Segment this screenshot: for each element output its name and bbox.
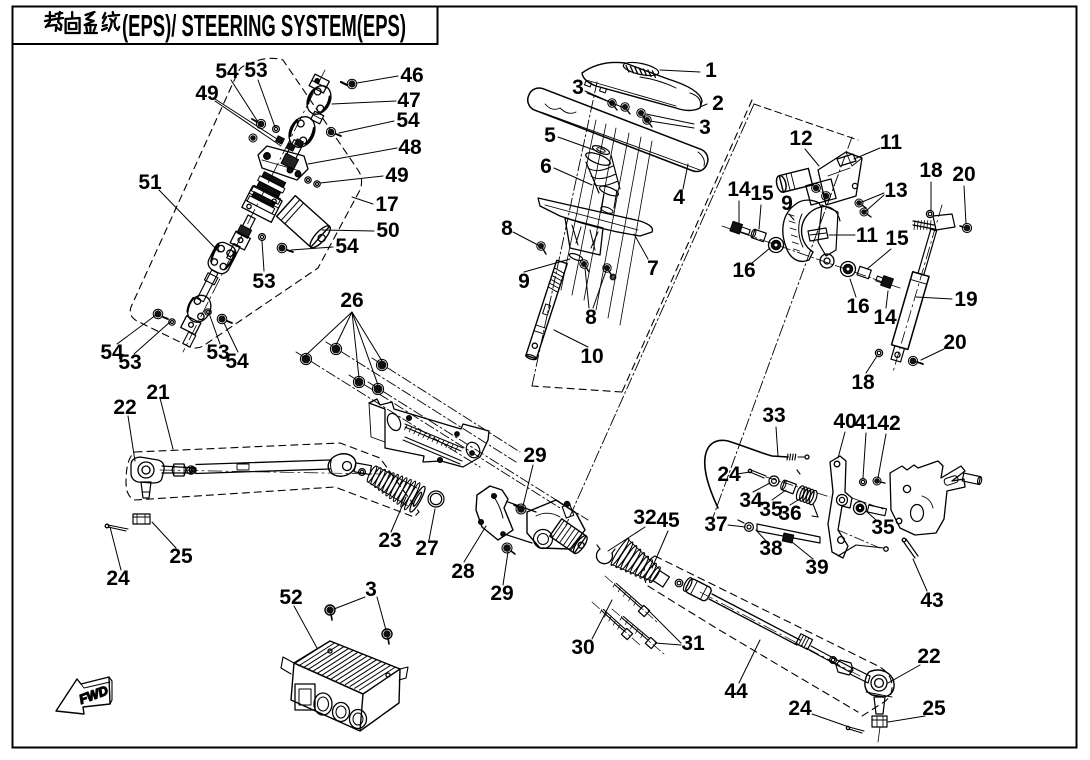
svg-text:9: 9 [781,192,793,215]
svg-text:18: 18 [851,371,875,394]
svg-text:46: 46 [400,64,423,87]
svg-text:14: 14 [727,178,751,201]
svg-text:36: 36 [778,502,801,525]
svg-text:25: 25 [922,697,946,720]
svg-text:54: 54 [396,109,420,132]
svg-text:3: 3 [699,116,711,139]
svg-text:52: 52 [279,586,302,609]
svg-text:42: 42 [877,412,900,435]
svg-text:24: 24 [717,463,741,486]
svg-text:31: 31 [681,632,705,655]
svg-text:53: 53 [244,59,267,82]
svg-text:3: 3 [365,578,377,601]
svg-text:51: 51 [138,171,162,194]
svg-text:39: 39 [805,556,828,579]
svg-text:50: 50 [376,219,399,242]
svg-text:15: 15 [750,182,774,205]
svg-text:54: 54 [335,235,359,258]
svg-text:12: 12 [789,127,812,150]
svg-text:48: 48 [398,136,422,159]
svg-text:33: 33 [762,404,785,427]
svg-text:30: 30 [571,636,594,659]
svg-text:29: 29 [490,582,513,605]
svg-text:8: 8 [501,217,513,240]
svg-text:19: 19 [954,288,977,311]
svg-text:5: 5 [544,124,556,147]
svg-text:43: 43 [920,589,943,612]
svg-text:6: 6 [540,155,552,178]
svg-text:2: 2 [712,92,724,115]
svg-text:20: 20 [943,331,966,354]
svg-text:10: 10 [580,345,603,368]
svg-text:22: 22 [917,645,940,668]
svg-text:40: 40 [833,410,856,433]
svg-text:29: 29 [523,444,546,467]
svg-text:13: 13 [884,179,907,202]
svg-text:4: 4 [673,186,685,209]
svg-text:15: 15 [885,227,909,250]
svg-text:38: 38 [759,537,783,560]
svg-text:53: 53 [252,270,275,293]
svg-text:16: 16 [846,295,869,318]
svg-text:11: 11 [880,131,903,154]
svg-text:11: 11 [856,224,879,247]
svg-text:16: 16 [732,259,755,282]
svg-text:41: 41 [854,411,878,434]
svg-text:20: 20 [952,163,975,186]
svg-text:24: 24 [106,567,130,590]
svg-text:26: 26 [340,289,363,312]
svg-text:54: 54 [215,60,239,83]
svg-text:45: 45 [656,509,680,532]
svg-text:3: 3 [572,76,584,99]
svg-text:32: 32 [633,506,656,529]
svg-text:18: 18 [919,159,943,182]
svg-text:35: 35 [871,516,895,539]
svg-text:14: 14 [873,306,897,329]
svg-text:21: 21 [146,381,170,404]
svg-text:44: 44 [724,680,748,703]
svg-text:49: 49 [385,164,408,187]
svg-text:9: 9 [518,270,530,293]
svg-text:7: 7 [647,257,659,280]
svg-text:28: 28 [451,560,475,583]
svg-text:37: 37 [704,513,727,536]
svg-text:25: 25 [169,545,193,568]
svg-text:1: 1 [705,59,717,82]
svg-text:49: 49 [195,82,218,105]
svg-text:17: 17 [375,193,398,216]
svg-text:(EPS)/ STEERING SYSTEM(EPS): (EPS)/ STEERING SYSTEM(EPS) [122,8,406,43]
svg-text:27: 27 [415,537,438,560]
svg-text:24: 24 [788,697,812,720]
svg-text:53: 53 [118,351,141,374]
svg-text:22: 22 [113,396,136,419]
svg-text:23: 23 [378,529,401,552]
svg-text:8: 8 [585,306,597,329]
svg-text:54: 54 [225,350,249,373]
